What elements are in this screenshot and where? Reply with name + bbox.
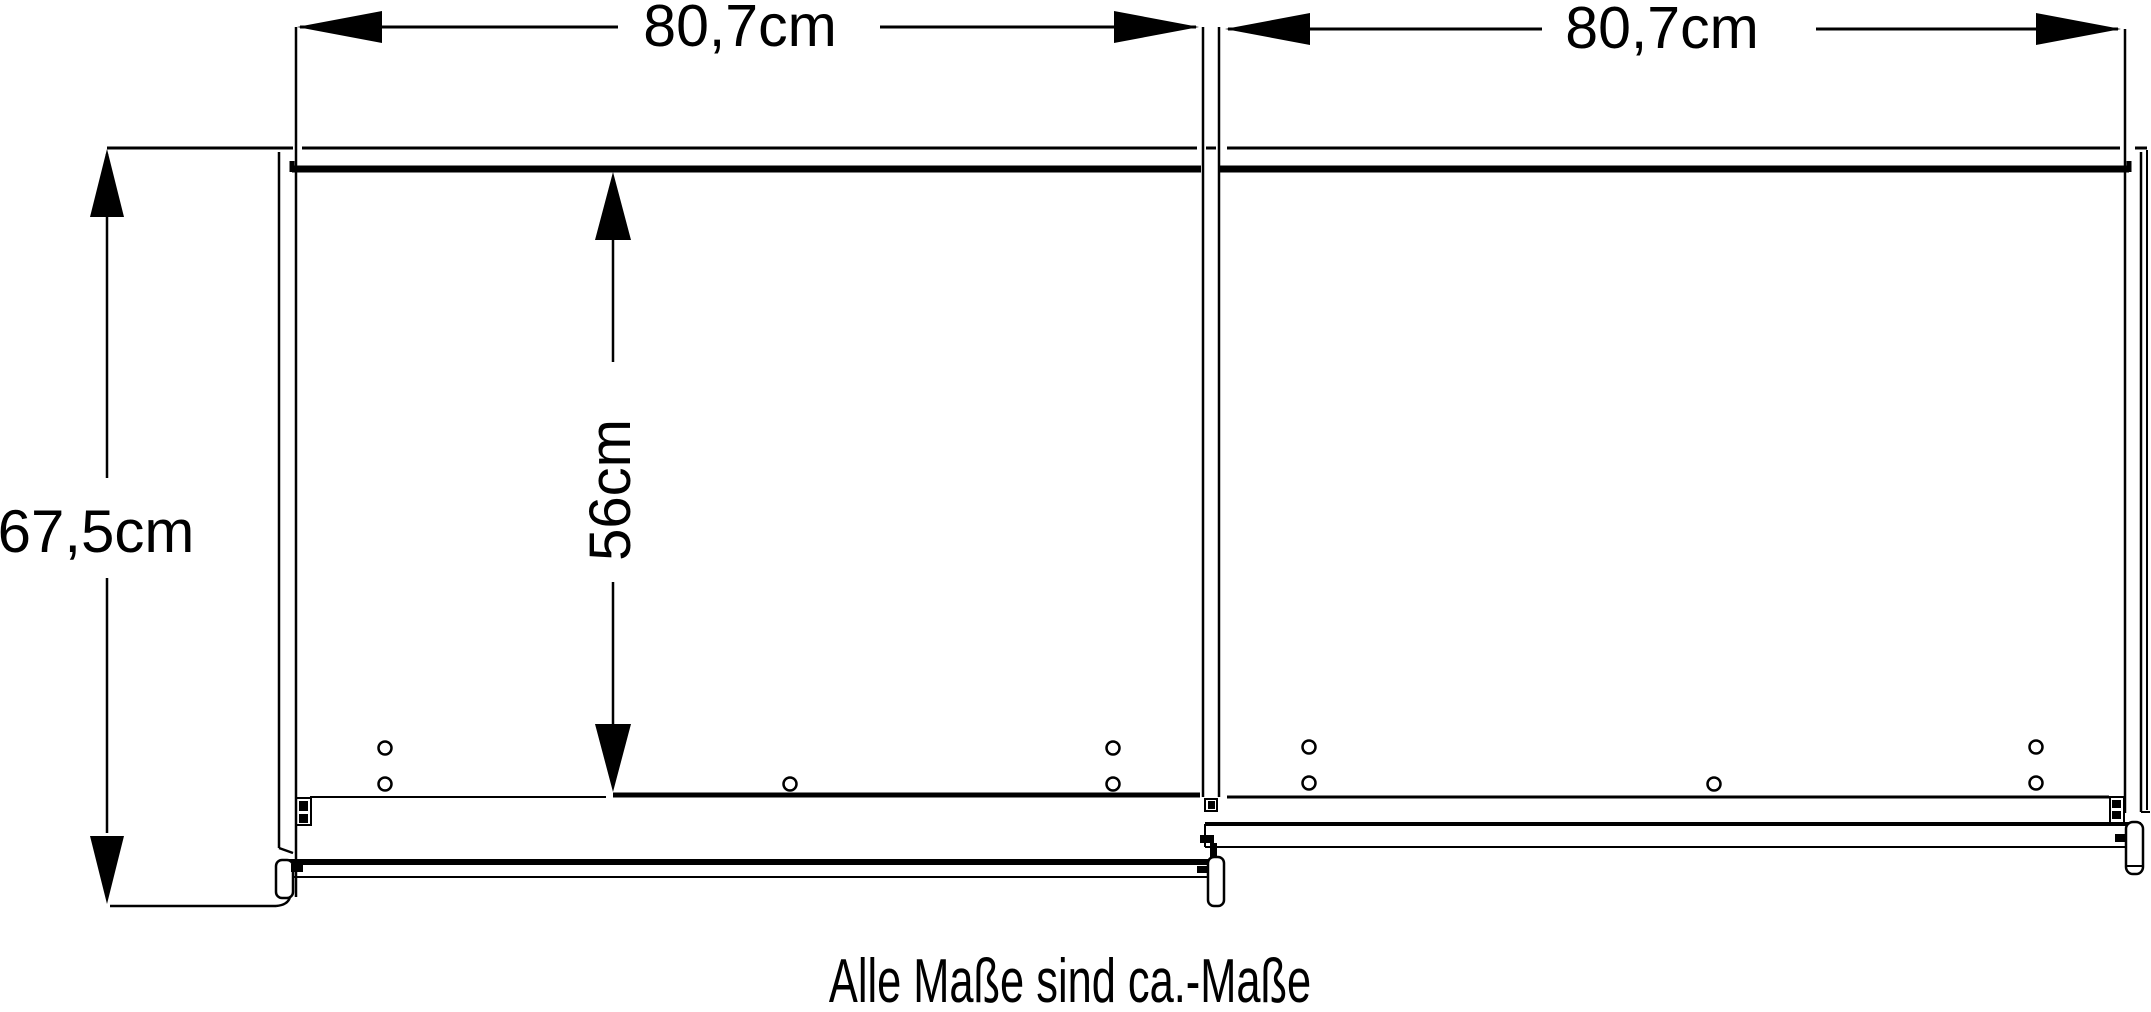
drill-hole <box>1107 778 1120 791</box>
drill-hole <box>379 742 392 755</box>
drill-hole <box>784 778 797 791</box>
arrowhead-up-icon <box>90 149 124 217</box>
arrowhead-down-icon <box>90 836 124 904</box>
drill-hole <box>1303 777 1316 790</box>
fitting-bracket-middle <box>1205 799 1217 811</box>
bottom-rail-right <box>1200 822 2143 874</box>
glide-foot-left <box>276 860 293 898</box>
sliding-door-left <box>292 27 1201 897</box>
arrowhead-right-icon <box>2036 13 2121 45</box>
drill-hole <box>2030 777 2043 790</box>
dimension-door-left-width: 80,7cm <box>297 0 1199 59</box>
fitting-bracket-right <box>2110 797 2124 823</box>
arrowhead-right-icon <box>1114 11 1199 43</box>
furniture-dimension-diagram: 80,7cm 80,7cm 67,5cm 56cm Alle Maße sind… <box>0 0 2151 1012</box>
drill-hole <box>1107 742 1120 755</box>
drill-hole <box>1303 741 1316 754</box>
arrowhead-down-icon <box>595 724 631 792</box>
drill-hole <box>2030 741 2043 754</box>
cabinet-carcass <box>107 27 2150 853</box>
bottom-rail-left <box>276 843 1224 906</box>
drill-hole <box>1708 778 1721 791</box>
dimension-label-door-left: 80,7cm <box>643 0 836 59</box>
fitting-bracket-left <box>296 798 311 825</box>
arrowhead-left-icon <box>297 11 382 43</box>
dimension-label-total-height: 67,5cm <box>0 498 194 565</box>
arrowhead-up-icon <box>595 172 631 240</box>
dimension-door-right-width: 80,7cm <box>1225 0 2121 61</box>
diagram-page: 80,7cm 80,7cm 67,5cm 56cm Alle Maße sind… <box>0 0 2151 1012</box>
caption: Alle Maße sind ca.-Maße <box>829 948 1311 1012</box>
dimension-interior-height: 56cm <box>578 172 643 792</box>
arrowhead-left-icon <box>1225 13 1310 45</box>
dimension-label-door-right: 80,7cm <box>1565 0 1758 61</box>
dimension-label-interior-height: 56cm <box>578 419 643 561</box>
glide-foot-middle <box>1208 857 1224 906</box>
drill-holes <box>379 741 2043 791</box>
cabinet-drawing <box>107 27 2150 906</box>
drill-hole <box>379 778 392 791</box>
dimension-total-height: 67,5cm <box>0 149 290 906</box>
